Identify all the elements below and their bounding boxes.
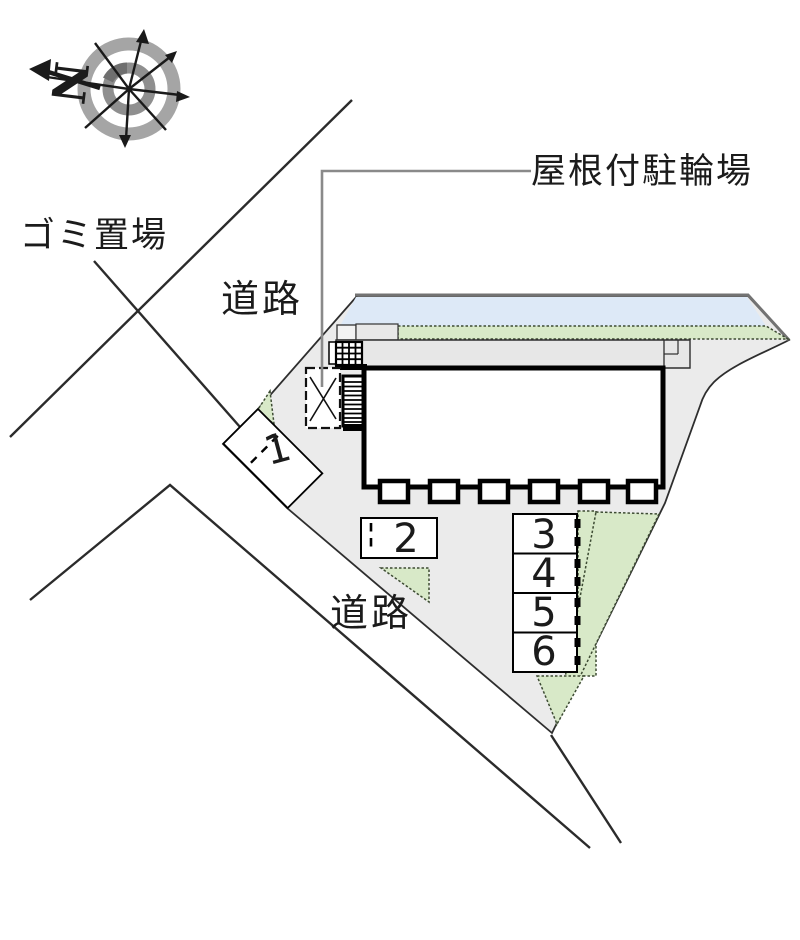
entrance-tooth — [480, 481, 508, 502]
parking-space-2: 2 — [361, 516, 437, 562]
entrance-tooth — [530, 481, 558, 502]
parking-number-2: 2 — [393, 516, 418, 562]
label-bicycle-parking: 屋根付駐輪場 — [531, 152, 753, 192]
site-plan-page: 1 2 3 4 5 6 — [0, 0, 800, 940]
entrance-tooth — [628, 481, 656, 502]
stairs-lower — [343, 376, 363, 431]
label-road-lower: 道路 — [330, 591, 412, 635]
label-road-upper: 道路 — [221, 277, 303, 321]
building-roof-strip — [340, 297, 766, 326]
site-plan-svg: 1 2 3 4 5 6 — [0, 0, 800, 940]
entrance-tooth — [380, 481, 408, 502]
entrance-tooth — [580, 481, 608, 502]
parking-spaces-3-6: 3 4 5 6 — [513, 512, 581, 675]
parking-number-6: 6 — [531, 629, 556, 675]
entrance-tooth — [430, 481, 458, 502]
stairs-lower-base — [343, 424, 363, 431]
entry-step-right — [356, 324, 398, 340]
building — [364, 368, 663, 487]
planting-strip-top — [398, 326, 788, 339]
building-entry-strip — [336, 340, 690, 368]
north-label: N — [40, 59, 99, 107]
entry-step-left — [337, 325, 356, 340]
label-garbage: ゴミ置場 — [20, 216, 168, 256]
